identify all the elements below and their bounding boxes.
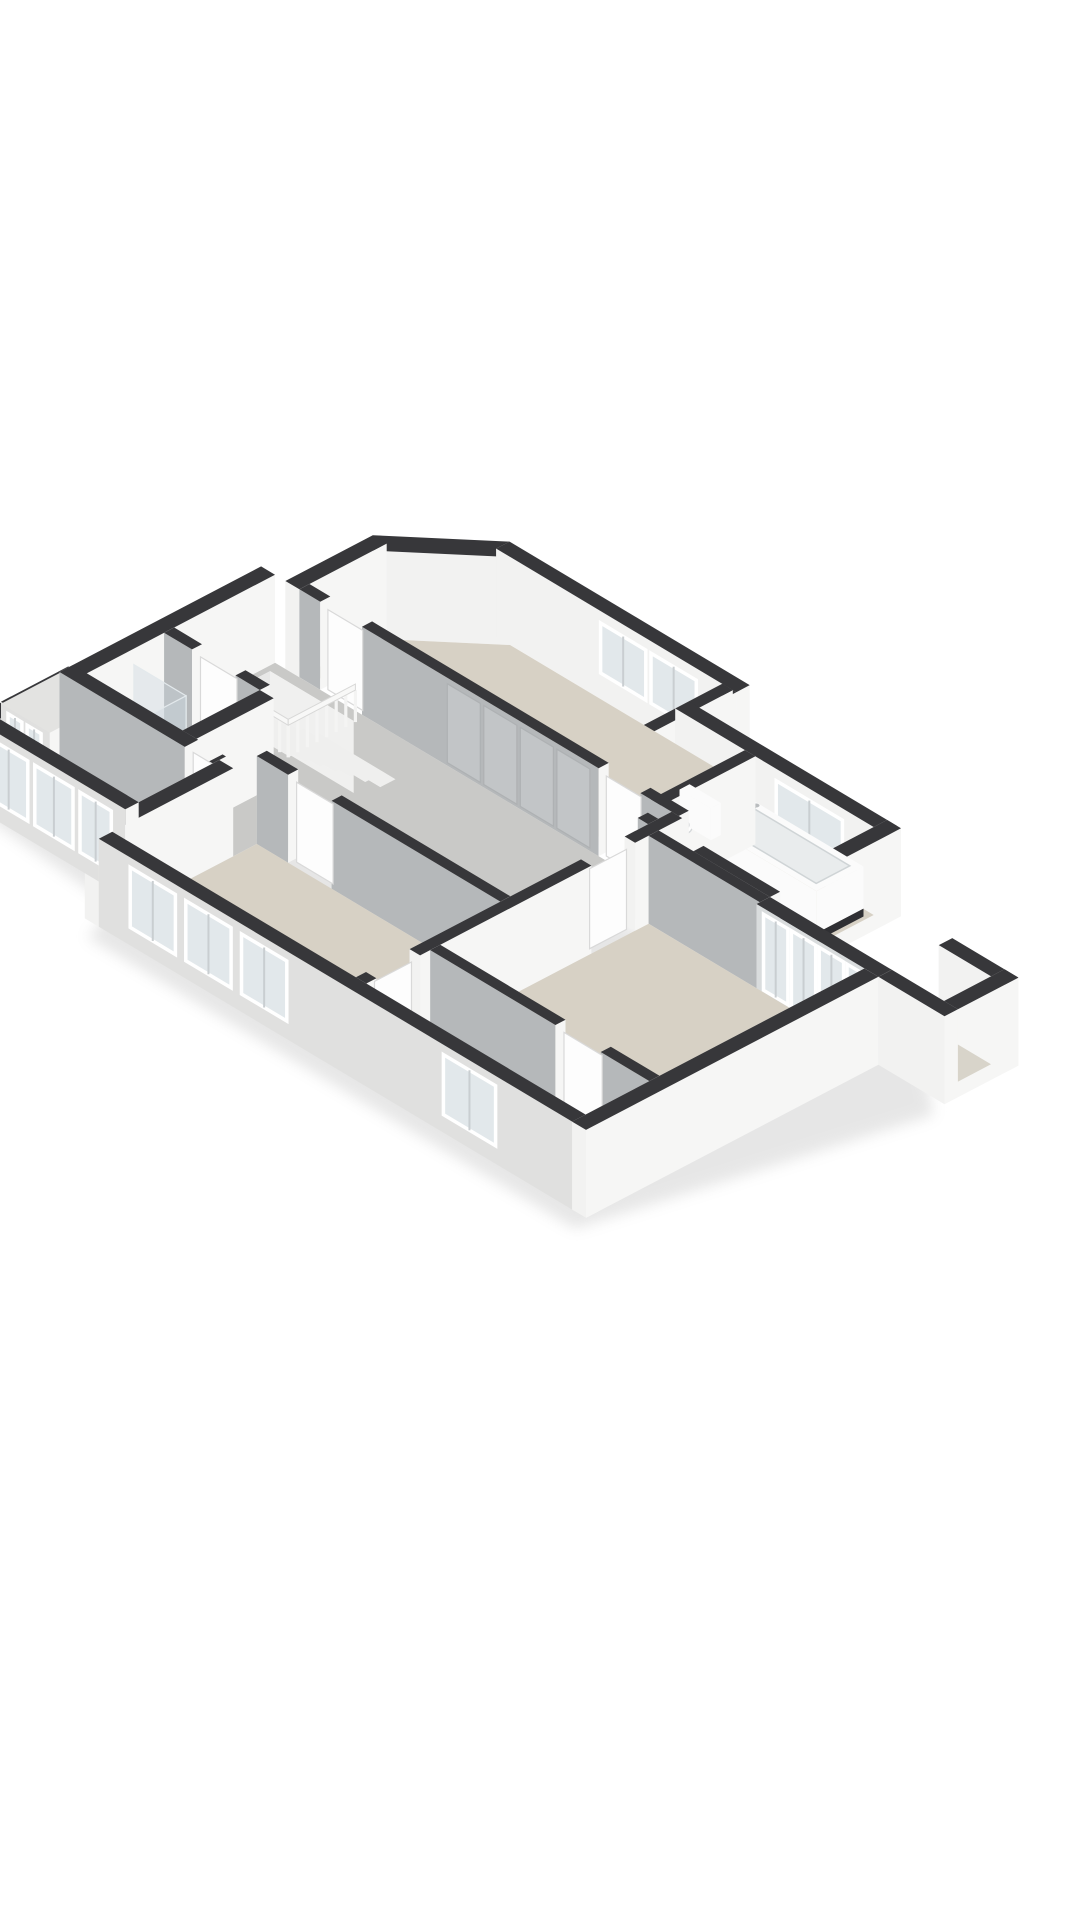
- floorplan-scene: [0, 535, 1018, 1228]
- wall-chamfer-north: [373, 535, 510, 645]
- floorplan-3d-canvas: [0, 0, 1080, 1920]
- floorplan-page: { "app": { "title": "3D floor plan rende…: [0, 0, 1080, 1920]
- wall-corridor-north-1: [299, 584, 330, 690]
- wall-bedroom-center-north-1: [257, 751, 298, 863]
